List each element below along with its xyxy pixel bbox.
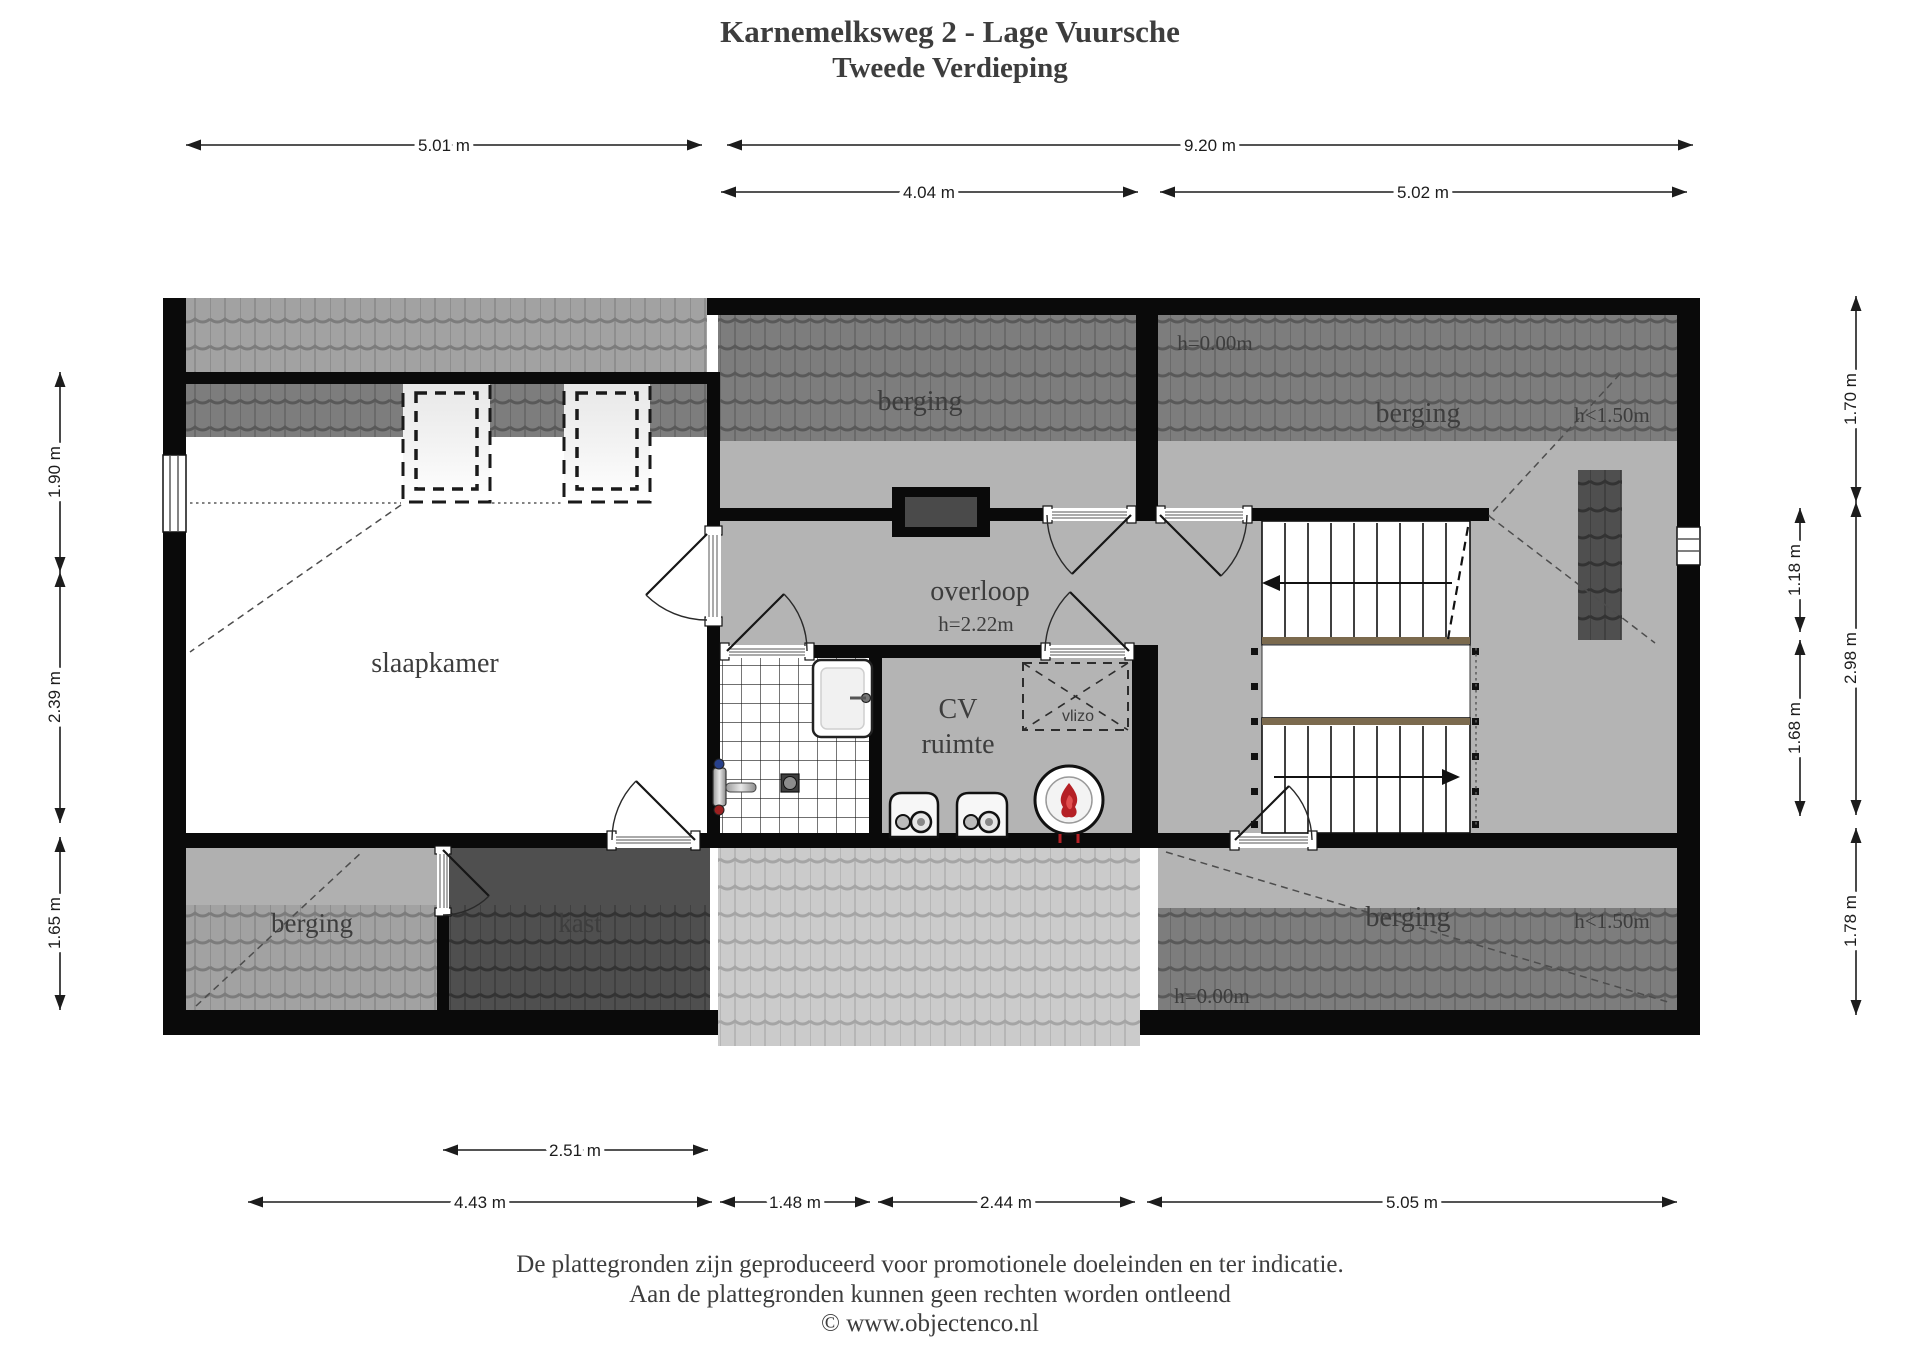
svg-text:2.98 m: 2.98 m bbox=[1841, 632, 1860, 684]
cv-boiler-unit bbox=[890, 793, 938, 837]
dimension-bottom-443: 4.43 m bbox=[248, 1193, 712, 1212]
dimension-bottom-244: 2.44 m bbox=[878, 1193, 1135, 1212]
svg-text:5.01 m: 5.01 m bbox=[418, 136, 470, 155]
dimension-bottom-251: 2.51 m bbox=[443, 1141, 708, 1160]
room-label-berging-top: berging bbox=[877, 386, 962, 417]
footer-disclaimer-line2: Aan de plattegronden kunnen geen rechten… bbox=[629, 1281, 1231, 1308]
room-label-berging-bottom-left: berging bbox=[271, 908, 353, 938]
room-label-cv-2: ruimte bbox=[921, 729, 994, 760]
room-label-slaapkamer: slaapkamer bbox=[371, 648, 499, 679]
cv-boiler-unit bbox=[957, 793, 1007, 837]
svg-text:1.18 m: 1.18 m bbox=[1785, 544, 1804, 596]
svg-text:1.70 m: 1.70 m bbox=[1841, 373, 1860, 425]
dimension-right-118: 1.18 m bbox=[1785, 508, 1806, 632]
annotation-h-zero-bottom: h=0.00m bbox=[1174, 984, 1249, 1008]
staircase bbox=[1251, 521, 1479, 833]
annotation-h-zero-top: h=0.00m bbox=[1177, 331, 1252, 355]
dimension-left-165: 1.65 m bbox=[45, 837, 66, 1010]
annotation-h150-top: h<1.50m bbox=[1574, 403, 1649, 427]
svg-text:5.02 m: 5.02 m bbox=[1397, 183, 1449, 202]
dimension-right-298: 2.98 m bbox=[1841, 502, 1862, 815]
svg-text:4.43 m: 4.43 m bbox=[454, 1193, 506, 1212]
dimension-top-501: 5.01 m bbox=[186, 136, 702, 155]
room-label-cv-1: CV bbox=[939, 694, 978, 725]
dimension-right-178: 1.78 m bbox=[1841, 828, 1862, 1015]
dimension-right-170: 1.70 m bbox=[1841, 296, 1862, 502]
window-left-wall bbox=[163, 455, 186, 532]
dimension-left-190: 1.90 m bbox=[45, 372, 66, 572]
svg-text:9.20 m: 9.20 m bbox=[1184, 136, 1236, 155]
svg-text:1.65 m: 1.65 m bbox=[45, 897, 64, 949]
bathroom-sink bbox=[813, 660, 872, 737]
svg-text:2.44 m: 2.44 m bbox=[980, 1193, 1032, 1212]
page-title-line1: Karnemelksweg 2 - Lage Vuursche bbox=[720, 14, 1180, 49]
dimension-right-168: 1.68 m bbox=[1785, 640, 1806, 816]
dimension-bottom-505: 5.05 m bbox=[1147, 1193, 1677, 1212]
annotation-h150-bottom: h<1.50m bbox=[1574, 909, 1649, 933]
chimney bbox=[892, 487, 990, 537]
svg-text:2.51 m: 2.51 m bbox=[549, 1141, 601, 1160]
dimension-top-404: 4.04 m bbox=[721, 183, 1138, 202]
dimension-bottom-148: 1.48 m bbox=[720, 1193, 870, 1212]
svg-text:1.78 m: 1.78 m bbox=[1841, 895, 1860, 947]
room-label-berging-bottom-right: berging bbox=[1365, 902, 1450, 933]
label-vlizo: vlizo bbox=[1062, 708, 1094, 725]
room-label-overloop: overloop bbox=[930, 576, 1030, 607]
svg-text:2.39 m: 2.39 m bbox=[45, 671, 64, 723]
footer-disclaimer-line1: De plattegronden zijn geproduceerd voor … bbox=[516, 1251, 1343, 1278]
floorplan-canvas: Karnemelksweg 2 - Lage Vuursche Tweede V… bbox=[0, 0, 1920, 1358]
window-right-wall bbox=[1677, 527, 1700, 565]
page-title-line2: Tweede Verdieping bbox=[832, 52, 1068, 84]
svg-text:4.04 m: 4.04 m bbox=[903, 183, 955, 202]
footer-copyright: © www.objectenco.nl bbox=[821, 1310, 1039, 1337]
room-label-overloop-height: h=2.22m bbox=[938, 612, 1013, 636]
svg-text:1.48 m: 1.48 m bbox=[769, 1193, 821, 1212]
floorplan-page: Karnemelksweg 2 - Lage Vuursche Tweede V… bbox=[0, 0, 1920, 1358]
dimension-top-502: 5.02 m bbox=[1160, 183, 1687, 202]
svg-text:1.90 m: 1.90 m bbox=[45, 446, 64, 498]
dimension-left-239: 2.39 m bbox=[45, 572, 66, 823]
room-label-berging-top-right: berging bbox=[1375, 398, 1460, 429]
shower-drain bbox=[781, 774, 799, 792]
room-label-kast: kast bbox=[558, 908, 602, 938]
skylight-window bbox=[403, 380, 490, 502]
svg-text:5.05 m: 5.05 m bbox=[1386, 1193, 1438, 1212]
svg-text:1.68 m: 1.68 m bbox=[1785, 702, 1804, 754]
skylight-window bbox=[564, 380, 650, 502]
dimension-top-920: 9.20 m bbox=[727, 136, 1693, 155]
